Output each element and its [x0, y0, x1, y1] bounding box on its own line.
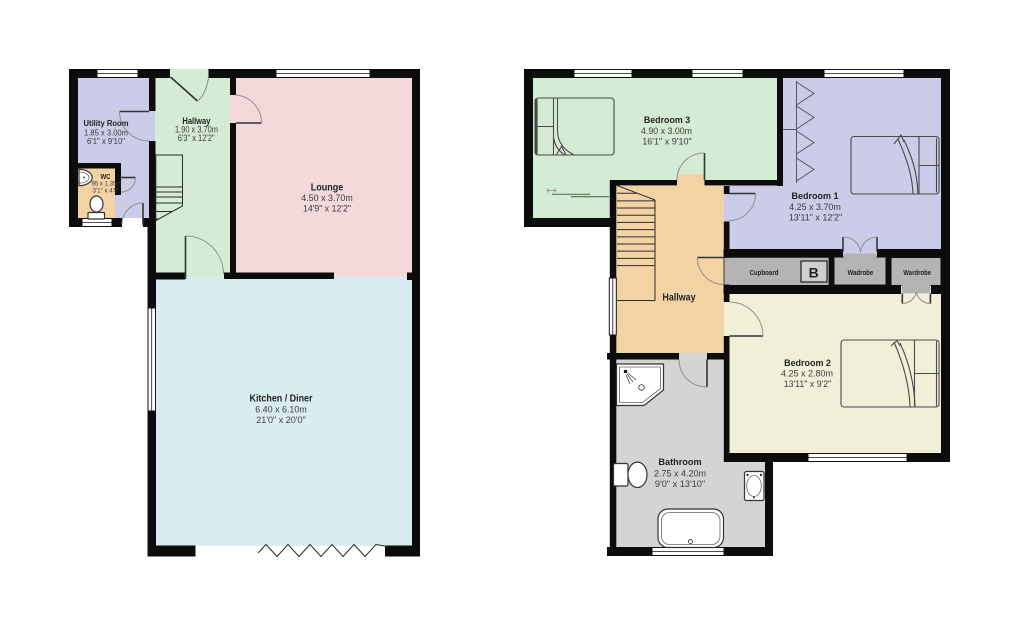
svg-text:4.90 x 3.00m: 4.90 x 3.00m — [641, 126, 692, 136]
svg-text:Cupboard: Cupboard — [750, 270, 779, 277]
svg-text:Hallway: Hallway — [662, 293, 696, 304]
svg-text:4.50 x 3.70m: 4.50 x 3.70m — [301, 193, 353, 203]
svg-text:2.75 x 4.20m: 2.75 x 4.20m — [654, 469, 706, 479]
svg-text:Wardrobe: Wardrobe — [903, 270, 931, 277]
svg-text:6'1" x 9'10": 6'1" x 9'10" — [87, 137, 125, 146]
svg-text:16'1" x 9'10": 16'1" x 9'10" — [642, 137, 692, 147]
svg-text:9'0" x 13'10": 9'0" x 13'10" — [655, 479, 705, 489]
svg-text:B: B — [809, 265, 819, 281]
svg-text:6'3" x 12'2": 6'3" x 12'2" — [178, 133, 215, 143]
svg-text:Bedroom 3: Bedroom 3 — [644, 115, 690, 125]
svg-text:3'1" x 4'5": 3'1" x 4'5" — [93, 188, 121, 195]
svg-text:14'9" x 12'2": 14'9" x 12'2" — [303, 204, 351, 214]
svg-text:Bedroom 1: Bedroom 1 — [792, 191, 839, 201]
svg-text:13'11" x 12'2": 13'11" x 12'2" — [789, 213, 842, 223]
svg-text:4.25 x 3.70m: 4.25 x 3.70m — [789, 202, 841, 212]
svg-text:21'0" x 20'0": 21'0" x 20'0" — [256, 415, 306, 425]
svg-text:Wadrobe: Wadrobe — [848, 270, 874, 277]
svg-text:4.25 x 2.80m: 4.25 x 2.80m — [781, 369, 833, 379]
svg-text:13'11" x 9'2": 13'11" x 9'2" — [784, 379, 832, 389]
svg-text:Kitchen / Diner: Kitchen / Diner — [250, 394, 313, 405]
svg-text:Bedroom 2: Bedroom 2 — [784, 358, 831, 368]
svg-text:Lounge: Lounge — [311, 183, 344, 194]
svg-text:Bathroom: Bathroom — [658, 457, 701, 467]
svg-text:6.40 x 6.10m: 6.40 x 6.10m — [255, 405, 307, 415]
svg-text:95 x 1.35m: 95 x 1.35m — [92, 181, 122, 188]
svg-text:Utility Room: Utility Room — [84, 119, 129, 128]
